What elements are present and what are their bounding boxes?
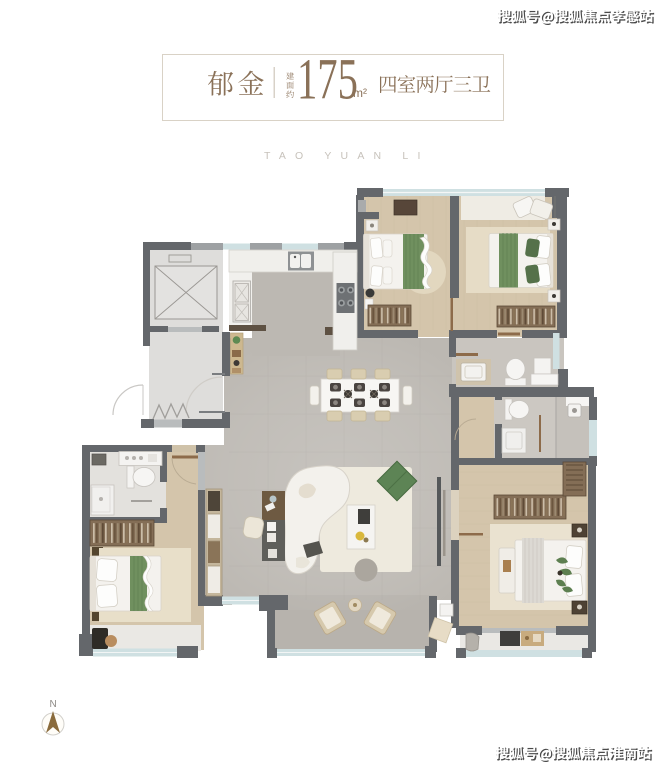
- svg-text:TAO YUAN LI: TAO YUAN LI: [264, 150, 430, 162]
- svg-text:N: N: [50, 699, 57, 710]
- svg-text:175: 175: [297, 46, 358, 111]
- svg-text:m²: m²: [353, 86, 367, 100]
